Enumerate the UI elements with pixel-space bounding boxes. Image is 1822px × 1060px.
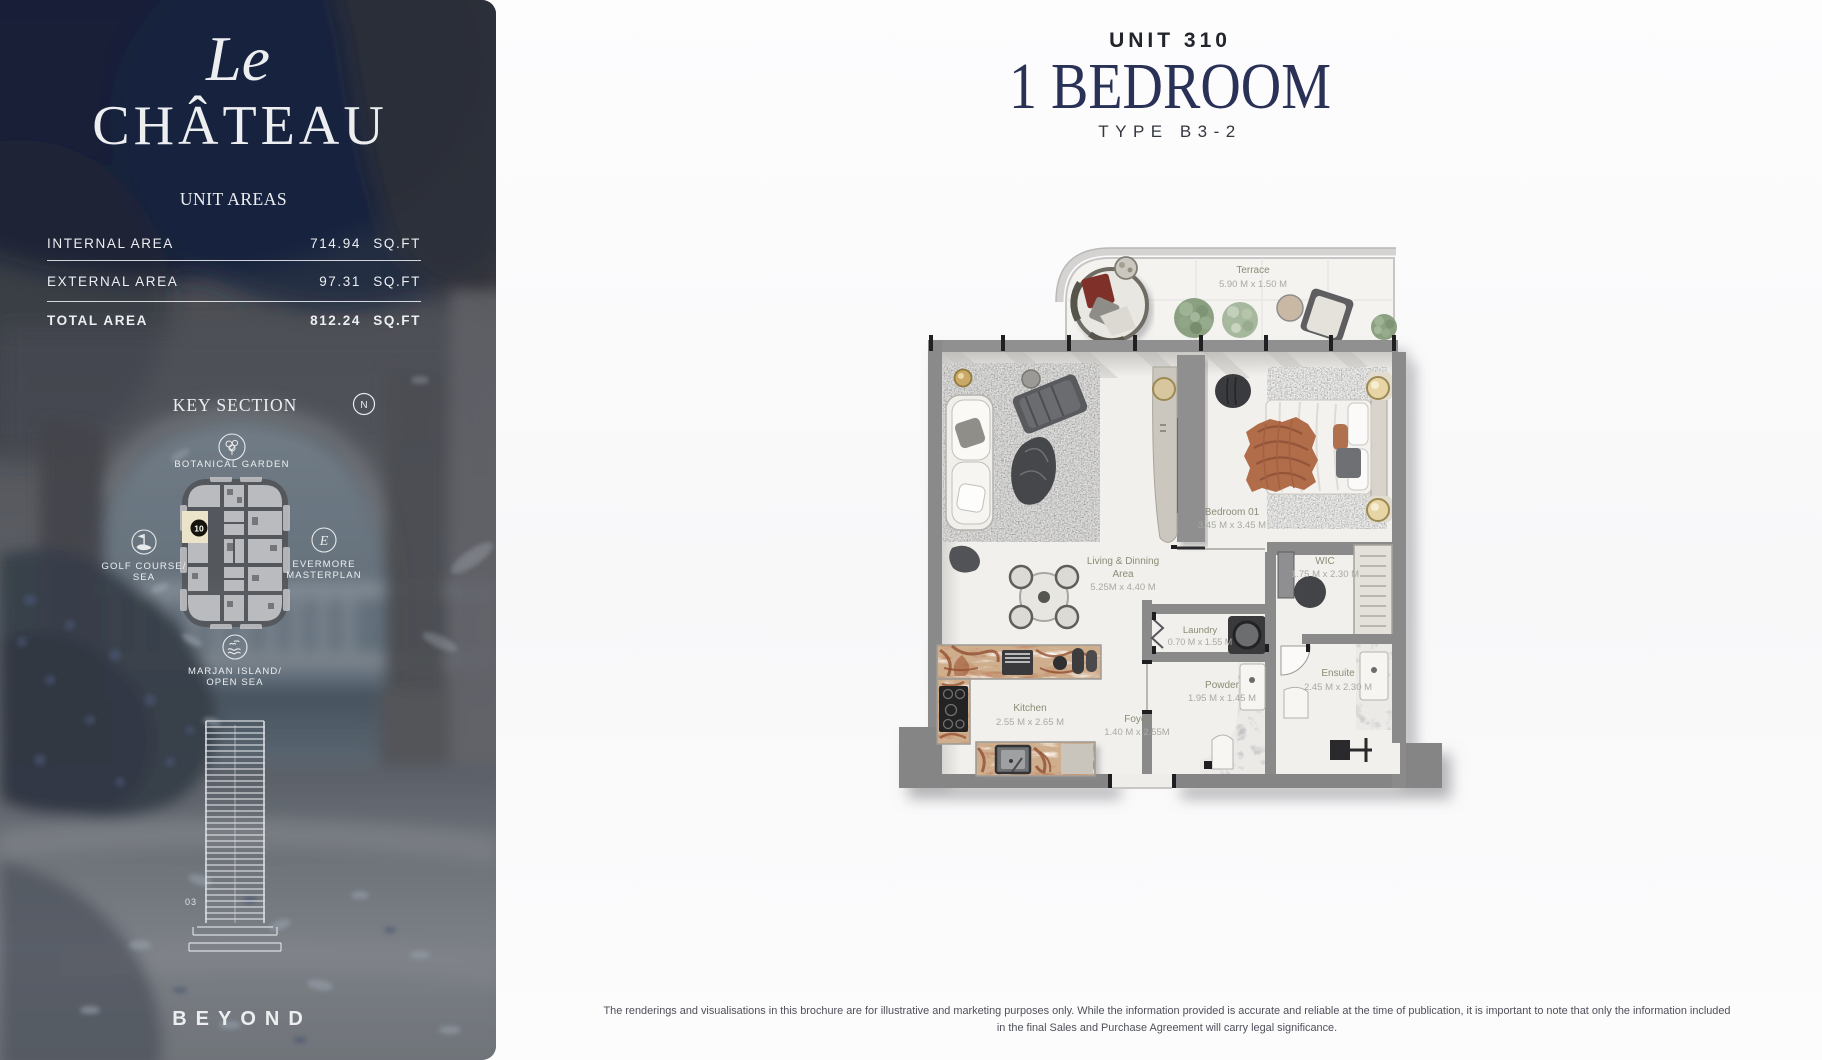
svg-text:Living & Dinning: Living & Dinning [1087,556,1159,567]
svg-text:Bedroom 01: Bedroom 01 [1205,507,1260,518]
svg-text:10: 10 [194,524,204,534]
svg-text:WIC: WIC [1315,556,1334,567]
svg-text:Foyer: Foyer [1124,714,1150,725]
svg-text:3.45 M x 3.45 M: 3.45 M x 3.45 M [1198,520,1266,531]
svg-text:Ensuite: Ensuite [1321,668,1355,679]
svg-text:1.40 M x 2.55M: 1.40 M x 2.55M [1104,727,1170,738]
svg-text:Area: Area [1112,569,1134,580]
svg-text:Powder: Powder [1205,680,1240,691]
svg-text:1.75 M x 2.30 M: 1.75 M x 2.30 M [1291,569,1359,580]
svg-text:1 BEDROOM: 1 BEDROOM [1009,50,1331,123]
svg-text:0.70 M x 1.55 M: 0.70 M x 1.55 M [1168,637,1233,647]
svg-text:Laundry: Laundry [1183,625,1218,636]
svg-text:03: 03 [185,897,197,907]
svg-text:E: E [319,534,329,549]
svg-text:N: N [360,400,367,411]
svg-text:Kitchen: Kitchen [1013,703,1046,714]
svg-text:5.90 M x 1.50 M: 5.90 M x 1.50 M [1219,279,1287,290]
svg-text:1.95 M x 1.45 M: 1.95 M x 1.45 M [1188,693,1256,704]
svg-text:Terrace: Terrace [1236,265,1270,276]
svg-text:2.45 M x 2.30 M: 2.45 M x 2.30 M [1304,682,1372,693]
svg-text:2.55 M x 2.65 M: 2.55 M x 2.65 M [996,717,1064,728]
svg-text:5.25M x 4.40 M: 5.25M x 4.40 M [1090,582,1156,593]
